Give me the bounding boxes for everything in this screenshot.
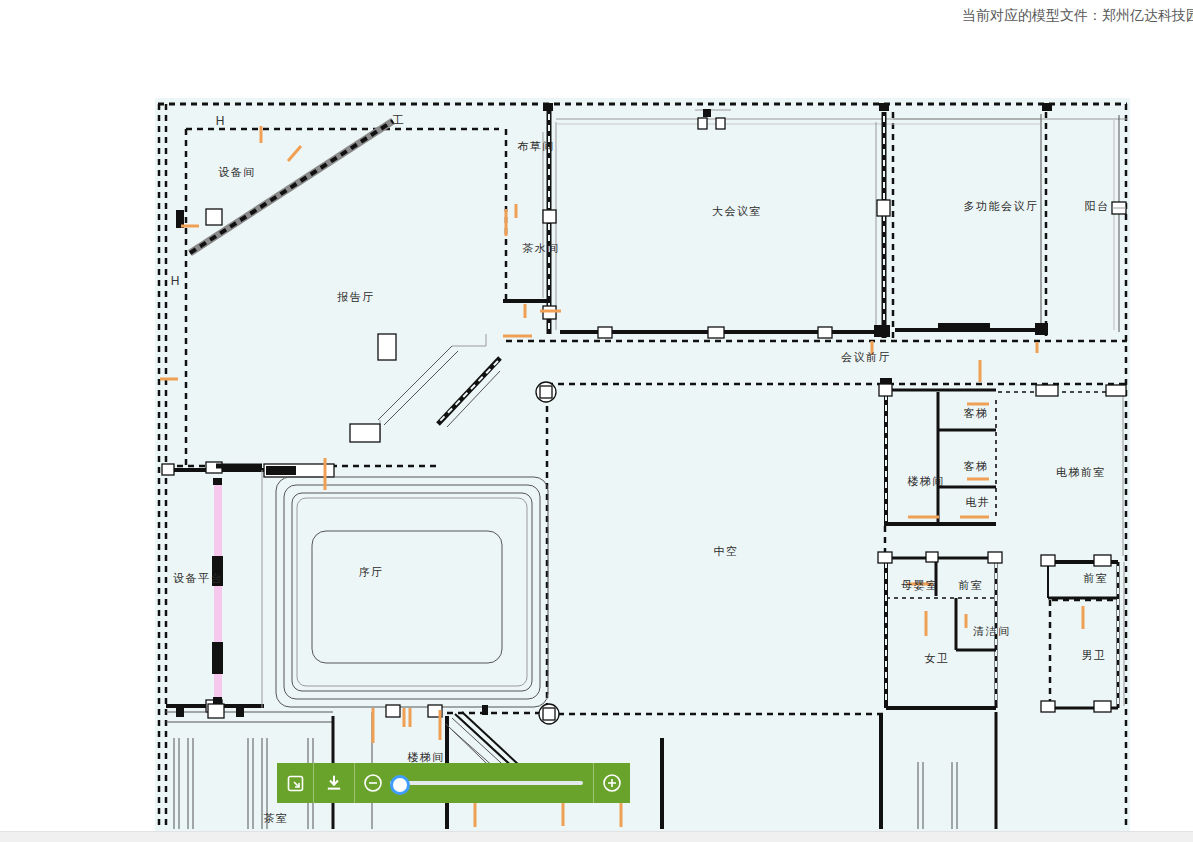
room-label-equipment-platform: 设备平台 xyxy=(173,571,223,586)
room-label-lecture-hall: 报告厅 xyxy=(337,290,375,305)
zoom-out-icon xyxy=(362,772,384,794)
grid-label-h-top: H xyxy=(216,114,225,128)
room-label-balcony: 阳台 xyxy=(1085,199,1110,214)
grid-label-gong: 工 xyxy=(392,112,404,129)
room-label-cleaning-room: 清洁间 xyxy=(973,624,1011,639)
room-label-meeting-foyer: 会议前厅 xyxy=(841,350,891,365)
zoom-slider-track[interactable] xyxy=(390,781,583,785)
model-file-label: 当前对应的模型文件：郑州亿达科技园 xyxy=(962,7,1193,25)
bottom-bar xyxy=(0,831,1193,842)
grid-label-h-left: H xyxy=(171,274,180,288)
room-label-large-meeting-room: 大会议室 xyxy=(712,204,762,219)
zoom-in-icon xyxy=(601,772,623,794)
fit-screen-icon xyxy=(287,775,304,792)
room-label-multifunction-hall: 多功能会议厅 xyxy=(964,199,1039,214)
viewer-toolbar xyxy=(277,763,630,803)
room-label-linen-room: 布草间 xyxy=(517,139,555,154)
fit-screen-button[interactable] xyxy=(277,763,313,803)
room-label-atrium-void: 中空 xyxy=(714,544,739,559)
room-label-nursing-room: 母婴室 xyxy=(901,578,939,593)
room-label-equipment-room: 设备间 xyxy=(218,165,256,180)
room-label-elevator-lobby: 电梯前室 xyxy=(1056,465,1106,480)
zoom-in-button[interactable] xyxy=(594,763,630,803)
room-label-stairwell-1: 楼梯间 xyxy=(907,474,945,489)
room-label-anteroom-2: 前室 xyxy=(1084,571,1109,586)
room-label-pantry: 茶水间 xyxy=(522,241,560,256)
zoom-slider[interactable] xyxy=(390,763,583,803)
download-button[interactable] xyxy=(314,763,354,803)
floorplan-viewport[interactable]: H 工 H 设备间 报告厅 布草间 茶水间 大会议室 多功能会议厅 阳台 会议前… xyxy=(155,98,1130,831)
room-label-passenger-lift-2: 客梯 xyxy=(964,459,989,474)
room-label-anteroom-1: 前室 xyxy=(959,578,984,593)
room-label-electrical-shaft: 电井 xyxy=(966,495,991,510)
room-label-womens-toilet: 女卫 xyxy=(925,651,950,666)
room-label-entrance-hall: 序厅 xyxy=(359,565,384,580)
zoom-out-button[interactable] xyxy=(362,763,384,803)
room-label-mens-toilet: 男卫 xyxy=(1082,648,1107,663)
zoom-slider-handle[interactable] xyxy=(390,775,410,795)
download-icon xyxy=(325,774,343,792)
room-label-tea-room: 茶室 xyxy=(264,811,289,826)
room-label-passenger-lift-1: 客梯 xyxy=(964,406,989,421)
